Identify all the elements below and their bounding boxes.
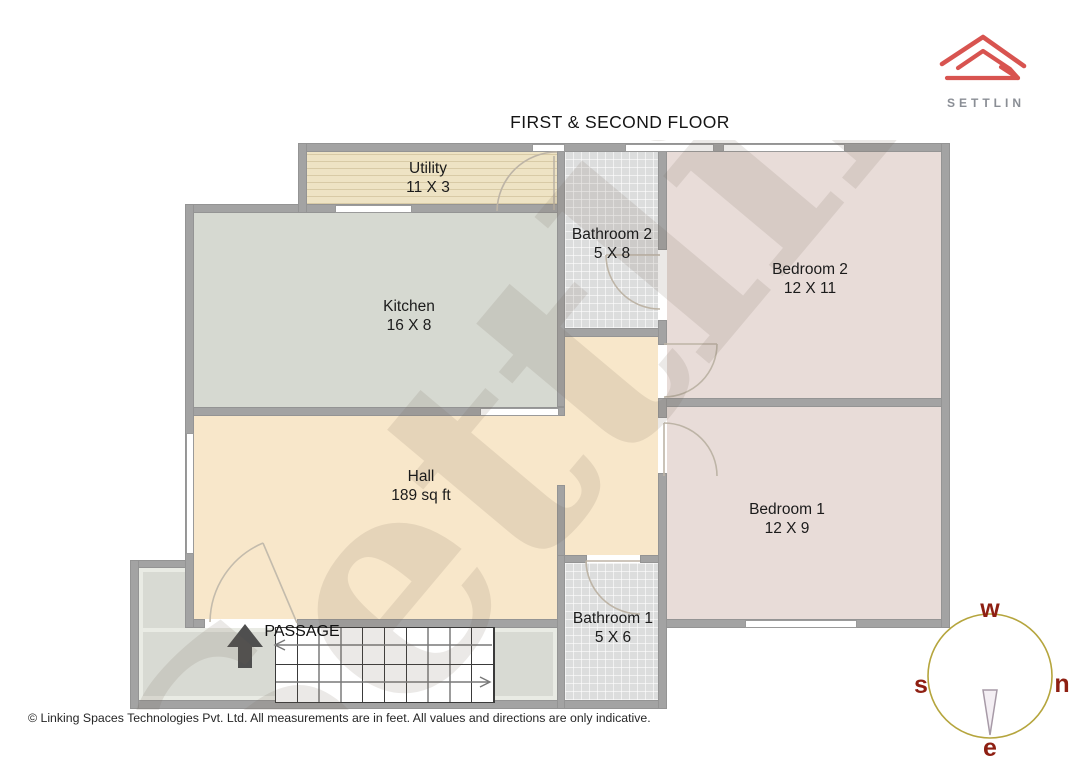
settlin-brand-label: SETTLIN [930,96,1042,110]
bedroom1-label: Bedroom 112 X 9 [749,500,825,538]
bathroom2-door-icon [606,255,660,309]
settlin-house-logo-icon [930,28,1042,90]
stair-direction-up-icon [275,640,492,650]
bedroom2-label: Bedroom 212 X 11 [772,260,848,298]
utility-label: Utility11 X 3 [406,159,450,197]
compass-west-label: w [979,595,1000,623]
bathroom1-label: Bathroom 15 X 6 [573,609,653,647]
bathroom1-door-icon [586,561,640,614]
floor-plan-page: FIRST & SECOND FLOOR © Linking Spaces Te… [0,0,1080,764]
utility-door-icon [497,152,557,211]
page-title: FIRST & SECOND FLOOR [510,112,730,133]
compass-south-label: s [914,671,928,699]
hall-door-icon [210,543,297,623]
compass-needle-icon [983,690,997,735]
compass: w s n e [910,590,1080,764]
compass-east-label: e [983,734,997,762]
compass-north-label: n [1054,670,1069,698]
kitchen-label: Kitchen16 X 8 [383,297,435,335]
stair-direction-down-icon [276,677,490,687]
bedroom2-door-icon [664,344,717,397]
passage-label: PASSAGE [264,623,339,641]
copyright-note: © Linking Spaces Technologies Pvt. Ltd. … [28,711,651,725]
bathroom2-label: Bathroom 25 X 8 [572,225,652,263]
hall-label: Hall189 sq ft [391,467,450,505]
bedroom1-door-icon [664,423,717,476]
passage-arrow-icon [227,624,263,668]
